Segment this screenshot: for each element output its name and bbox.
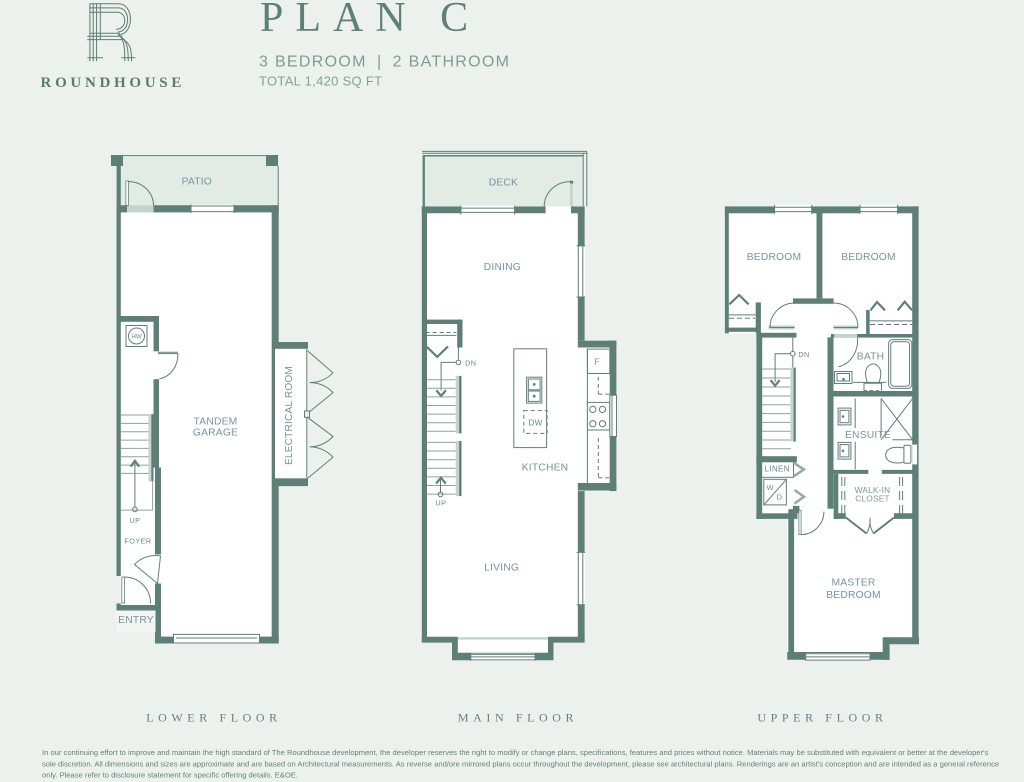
svg-text:PATIO: PATIO bbox=[182, 176, 212, 187]
svg-text:D: D bbox=[776, 492, 782, 501]
svg-text:UP: UP bbox=[435, 498, 446, 507]
svg-text:DINING: DINING bbox=[484, 262, 521, 273]
svg-text:In our continuing effort to im: In our continuing effort to improve and … bbox=[42, 748, 989, 757]
svg-text:LOWER FLOOR: LOWER FLOOR bbox=[146, 711, 282, 725]
svg-text:W: W bbox=[767, 483, 775, 492]
svg-text:ENTRY: ENTRY bbox=[118, 615, 154, 626]
svg-text:3 BEDROOM | 2 BATHROOM: 3 BEDROOM | 2 BATHROOM bbox=[259, 53, 510, 70]
svg-text:CLOSET: CLOSET bbox=[855, 493, 889, 503]
svg-text:ELECTRICAL ROOM: ELECTRICAL ROOM bbox=[284, 366, 295, 465]
svg-text:ROUNDHOUSE: ROUNDHOUSE bbox=[41, 75, 186, 91]
svg-text:PLAN C: PLAN C bbox=[260, 0, 480, 41]
svg-text:GARAGE: GARAGE bbox=[193, 427, 238, 438]
svg-text:BEDROOM: BEDROOM bbox=[747, 252, 802, 263]
svg-text:TANDEM: TANDEM bbox=[194, 416, 238, 427]
svg-text:MASTER: MASTER bbox=[831, 578, 875, 589]
svg-text:ENSUITE: ENSUITE bbox=[845, 430, 891, 441]
svg-text:DN: DN bbox=[465, 359, 476, 368]
svg-text:BEDROOM: BEDROOM bbox=[826, 590, 881, 601]
svg-text:KITCHEN: KITCHEN bbox=[522, 463, 569, 474]
svg-text:UPPER FLOOR: UPPER FLOOR bbox=[757, 711, 887, 725]
svg-text:HW: HW bbox=[131, 334, 142, 341]
svg-text:BATH: BATH bbox=[857, 352, 885, 363]
svg-text:MAIN FLOOR: MAIN FLOOR bbox=[458, 711, 578, 725]
svg-text:F: F bbox=[594, 358, 599, 367]
svg-text:LIVING: LIVING bbox=[484, 562, 519, 573]
svg-text:only. Please refer to disclosu: only. Please refer to disclosure stateme… bbox=[42, 771, 298, 780]
svg-text:DW: DW bbox=[528, 419, 542, 428]
svg-text:UP: UP bbox=[129, 516, 140, 525]
svg-text:DN: DN bbox=[798, 350, 809, 359]
svg-text:BEDROOM: BEDROOM bbox=[841, 252, 896, 263]
svg-text:DECK: DECK bbox=[489, 177, 518, 188]
svg-text:TOTAL 1,420 SQ FT: TOTAL 1,420 SQ FT bbox=[259, 74, 382, 89]
svg-text:FOYER: FOYER bbox=[124, 537, 151, 546]
svg-text:LINEN: LINEN bbox=[765, 464, 790, 473]
svg-text:sole discretion. All dimension: sole discretion. All dimensions and size… bbox=[42, 759, 999, 768]
